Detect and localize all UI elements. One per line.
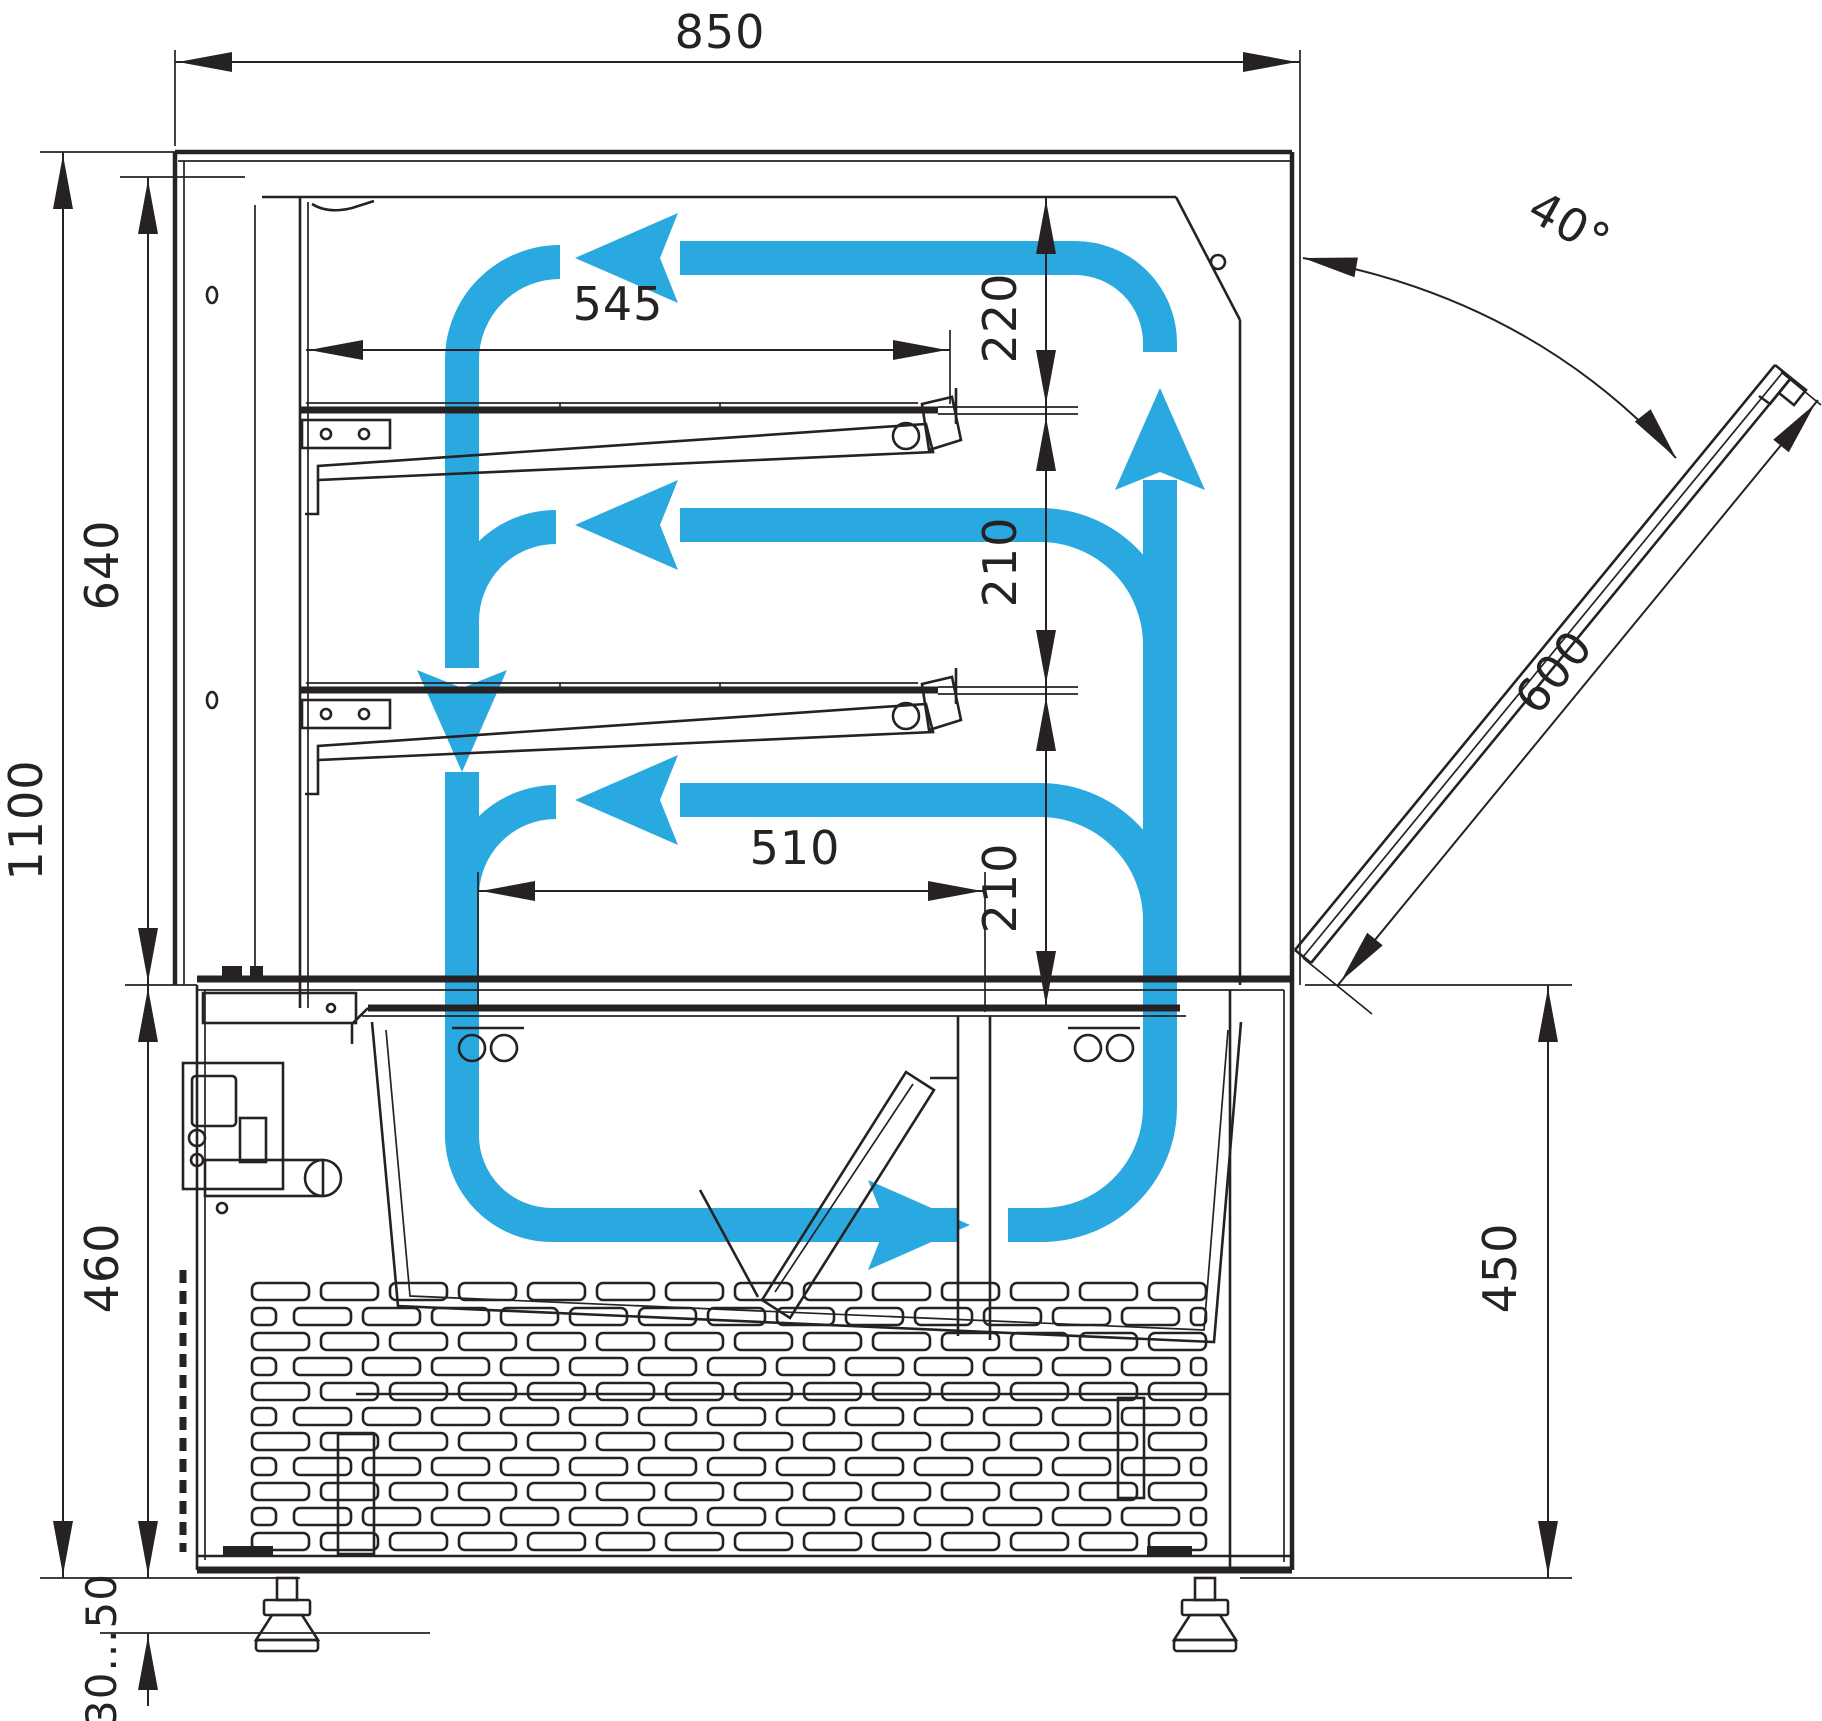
- compressor-unit: [183, 993, 356, 1213]
- adjustable-foot-left: [256, 1578, 318, 1651]
- airflow-middle-left-curve: [462, 527, 556, 655]
- dim-label-30-50: 30...50: [77, 1573, 126, 1721]
- ventilation-grille: [252, 1283, 1206, 1550]
- drawing-page: 850 1100 640 460 30...5: [0, 0, 1822, 1721]
- dim-label-510: 510: [750, 821, 841, 875]
- bottom-tab-right: [1147, 1546, 1192, 1557]
- counter-tab-2: [250, 966, 263, 978]
- shelf-upper: [300, 388, 1078, 514]
- airflow-left-duct-lower-and-bottom-run: [462, 772, 958, 1225]
- deck-roller-right: [1068, 1028, 1140, 1061]
- dim-label-1100: 1100: [0, 759, 53, 880]
- airflow-arrow-up: [1115, 388, 1205, 490]
- dim-label-210-lower: 210: [973, 843, 1027, 934]
- dim-510: 510: [478, 821, 985, 1012]
- inner-support: [338, 1434, 374, 1554]
- airflow-top-stream: [680, 258, 1160, 352]
- bottom-tab-left: [223, 1546, 273, 1557]
- corner-hole: [1211, 255, 1225, 269]
- dim-label-640: 640: [75, 520, 129, 611]
- ceiling-clip: [312, 201, 374, 210]
- dim-640-460: 640 460: [75, 177, 245, 1578]
- airflow-bottom-right-curve: [1008, 1107, 1160, 1225]
- dim-label-850: 850: [675, 5, 766, 59]
- dim-label-460: 460: [75, 1223, 129, 1314]
- cavity-corner-chamfer: [1176, 197, 1240, 320]
- airflow-arrow-left-lower: [575, 755, 678, 845]
- airflow-arrow-left-middle: [575, 480, 678, 570]
- door-hook-lip: [1759, 393, 1779, 404]
- dim-label-545: 545: [573, 277, 664, 331]
- dim-label-450: 450: [1473, 1223, 1527, 1314]
- shelf-lower: [300, 668, 1078, 794]
- dim-label-40deg: 40°: [1520, 180, 1620, 268]
- back-panel-hole-upper: [207, 287, 217, 303]
- dim-shelf-clearances: 220 210 210: [973, 197, 1078, 1010]
- airflow-circulation: [417, 213, 1205, 1270]
- airflow-arrow-down: [417, 670, 507, 772]
- dim-30-50: 30...50: [77, 1573, 430, 1721]
- counter-tab-1: [222, 966, 242, 978]
- dim-label-210-middle: 210: [973, 517, 1027, 608]
- evaporator: [700, 1072, 958, 1318]
- deck-left-cap: [352, 1008, 368, 1044]
- display-case-technical-drawing: 850 1100 640 460 30...5: [0, 0, 1822, 1721]
- dim-40deg: 40°: [1301, 180, 1684, 464]
- dim-545: 545: [306, 277, 950, 404]
- dim-label-220: 220: [973, 273, 1027, 364]
- back-panel-hole-lower: [207, 692, 217, 708]
- airflow-lower-left-curve: [462, 802, 556, 930]
- dim-600: 600: [1303, 372, 1822, 1014]
- adjustable-foot-right: [1174, 1578, 1236, 1651]
- airflow-middle-stream: [680, 525, 1160, 652]
